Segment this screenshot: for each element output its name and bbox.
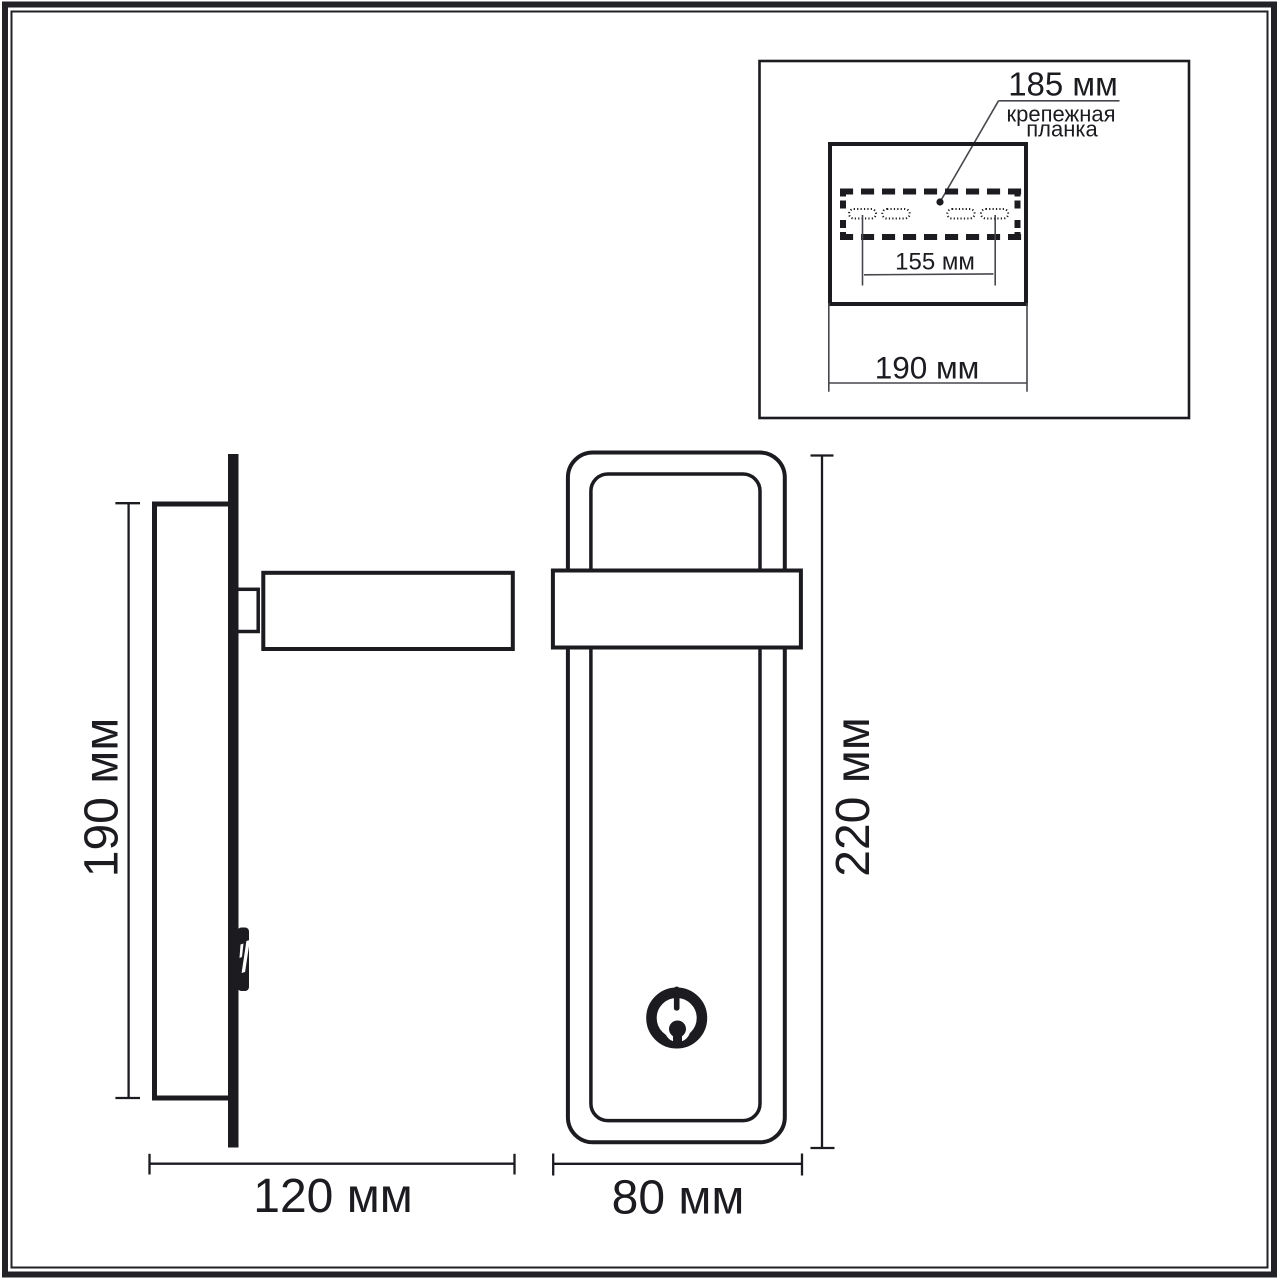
svg-text:155 мм: 155 мм — [895, 249, 975, 276]
svg-text:120 мм: 120 мм — [253, 1170, 412, 1223]
svg-text:220 мм: 220 мм — [827, 717, 880, 876]
svg-text:190 мм: 190 мм — [875, 350, 980, 386]
svg-text:80 мм: 80 мм — [612, 1172, 745, 1225]
svg-text:190 мм: 190 мм — [76, 718, 129, 877]
svg-text:185 мм: 185 мм — [1008, 66, 1118, 103]
svg-text:планка: планка — [1026, 117, 1098, 142]
